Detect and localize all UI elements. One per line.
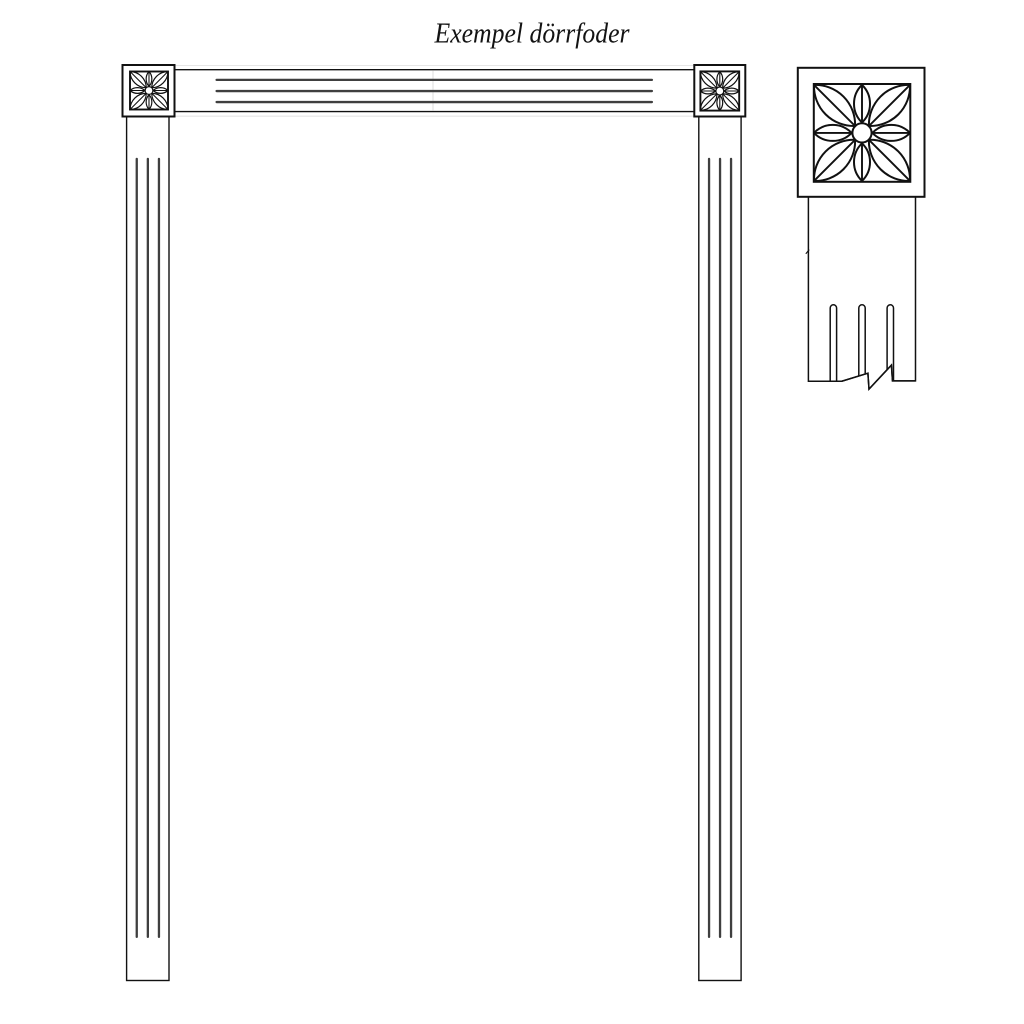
svg-text:Exempel dörrfoder: Exempel dörrfoder [434,18,630,49]
